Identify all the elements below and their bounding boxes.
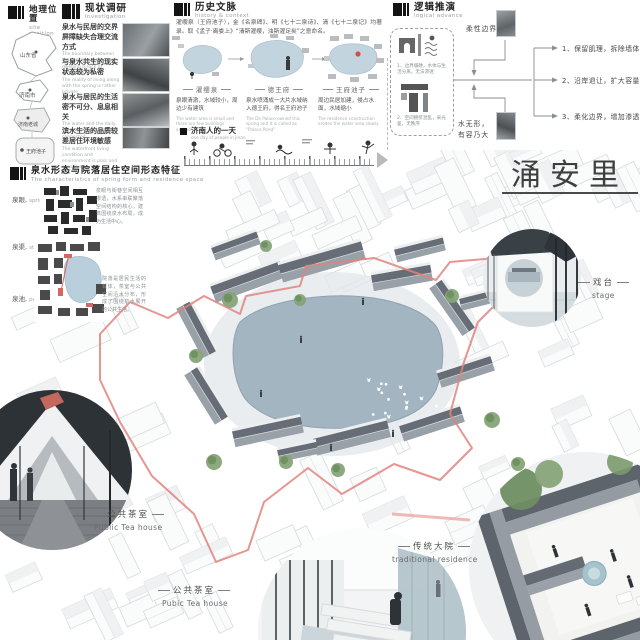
label-cn: 泉眼, [12,196,27,204]
panel-icon [10,167,26,180]
header-band: 地理位置 site position 山东省 济南市 济南老城 王府池子 [0,0,640,150]
stage-name: 濯缨泉 [196,84,219,94]
panel-title: 现状调研 [85,4,127,14]
tea-house-label-en: Public Tea house [94,523,163,532]
node-flexible-boundary: 柔性边界 [466,23,497,33]
strategy-2: 2、沿岸退让，扩大容量 [562,75,640,85]
timeline-title: 济南人的一天 [191,127,245,135]
stage-label-en: stage [592,291,615,300]
stage-name: 王府池子 [336,84,366,94]
map-label-oldtown: 济南老城 [18,121,38,128]
poster: 地理位置 site position 山东省 济南市 济南老城 王府池子 [0,0,640,640]
morphology-note: 泉眼与街巷空间相互渗透，水系串联聚落空间结构的核心，建筑围绕泉水布局，成为生活中… [96,188,143,227]
tea-room-label-en: Pubic Tea house [162,599,228,608]
morphology-note: 院落是居民生活的载体，茶室与公共空间沿水分布，形成了围绕泉水展开的公共生活。 [102,276,146,315]
panel-divider [387,58,388,150]
label-cn: 公共茶室 [173,584,215,596]
node-water-formless-1: 水无形， [458,118,489,128]
site-photo [122,58,170,92]
panel-icon [62,4,80,19]
stage-label: 戏台 [578,276,629,288]
figure-ground-diagram-1 [40,184,102,238]
pond-evolution-diagrams [172,34,384,84]
label-cn: 戏台 [593,276,614,288]
item-cn: 泉水与民居的交界屏障缺失合理交流方式 [62,23,119,52]
stage-cn: 周边民居加建，侵占水面，水域缩小 [318,97,384,114]
timeline-figures [184,138,380,158]
panel-investigation-header: 现状调研 investigation [62,4,162,21]
morphology-header: 泉水形态与院落居住空间形态特征 The characteristics of s… [10,167,240,183]
history-stage: 德王府 泉水喷涌成一大片水域纳入德王府，得名王府池子 The De Palace… [246,84,312,133]
pond [233,296,443,429]
panel-icon [174,3,190,16]
stage-cn: 泉眼清澈，水域较小，周边少有建筑 [176,97,238,114]
section-subtitle: The characteristics of spring form and r… [31,177,204,184]
node-water-formless-2: 有容乃大 [458,129,489,139]
strategy-1: 1、保留肌理，拆除墙体 [562,43,640,53]
item-cn: 滨水生活的品质较差居住环境敏感 [62,127,119,147]
investigation-item: 与泉水共生的现实状态较为私密 The reality of living alo… [62,58,170,96]
panel-history-header: 历史文脉 history & context [174,3,374,20]
timeline-icon [180,128,187,135]
map-label-pond: 王府池子 [26,148,46,155]
timeline-ruler [184,156,374,166]
investigation-item: 滨水生活的品质较差居住环境敏感 The waterfront living co… [62,127,170,171]
map-label-province: 山东省 [20,51,37,59]
site-photo [122,23,170,57]
residence-label-en: traditional residence [392,555,478,564]
residence-label: 传统大院 [398,540,470,552]
timeline-arrow [377,152,388,168]
item-cn: 与泉水共生的现实状态较为私密 [62,58,119,78]
figure-ground-diagram-2 [34,240,108,322]
label-cn: 公共茶室 [107,508,149,520]
stage-cn: 泉水喷涌成一大片水域纳入德王府，得名王府池子 [246,97,312,114]
node-photo [496,112,516,140]
history-stage: 王府池子 周边民居加建，侵占水面，水域缩小 The residence cons… [318,84,384,127]
stage-en: The De Palace owned this spring and it i… [246,116,312,133]
item-cn: 泉水与居民的生活密不可分、息息相关 [62,93,119,122]
panel-icon [8,6,24,19]
callout-residence-render [465,448,640,640]
tea-room-label: 公共茶室 [158,584,230,596]
stage-name: 德王府 [268,84,291,94]
stage-en: The residence construction erodes the wa… [318,116,384,127]
label-cn: 泉渠, [12,243,27,251]
title-underline [502,192,638,194]
panel-title: 历史文脉 [195,3,249,13]
site-photo [122,93,170,127]
panel-subtitle: investigation [85,14,127,21]
node-photo [496,10,516,37]
panel-title: 地理位置 [29,6,60,25]
location-maps: 山东省 济南市 济南老城 王府池子 [6,26,62,166]
tea-house-label: 公共茶室 [92,508,164,520]
project-title: 涌安里 [511,150,628,194]
label-cn: 泉池, [12,295,27,303]
map-label-city: 济南市 [19,91,36,99]
site-photo [122,127,170,149]
label-cn: 传统大院 [413,540,455,552]
section-title: 泉水形态与院落居住空间形态特征 [31,167,204,177]
strategy-3: 3、柔化边界，增加渗透 [562,111,640,121]
